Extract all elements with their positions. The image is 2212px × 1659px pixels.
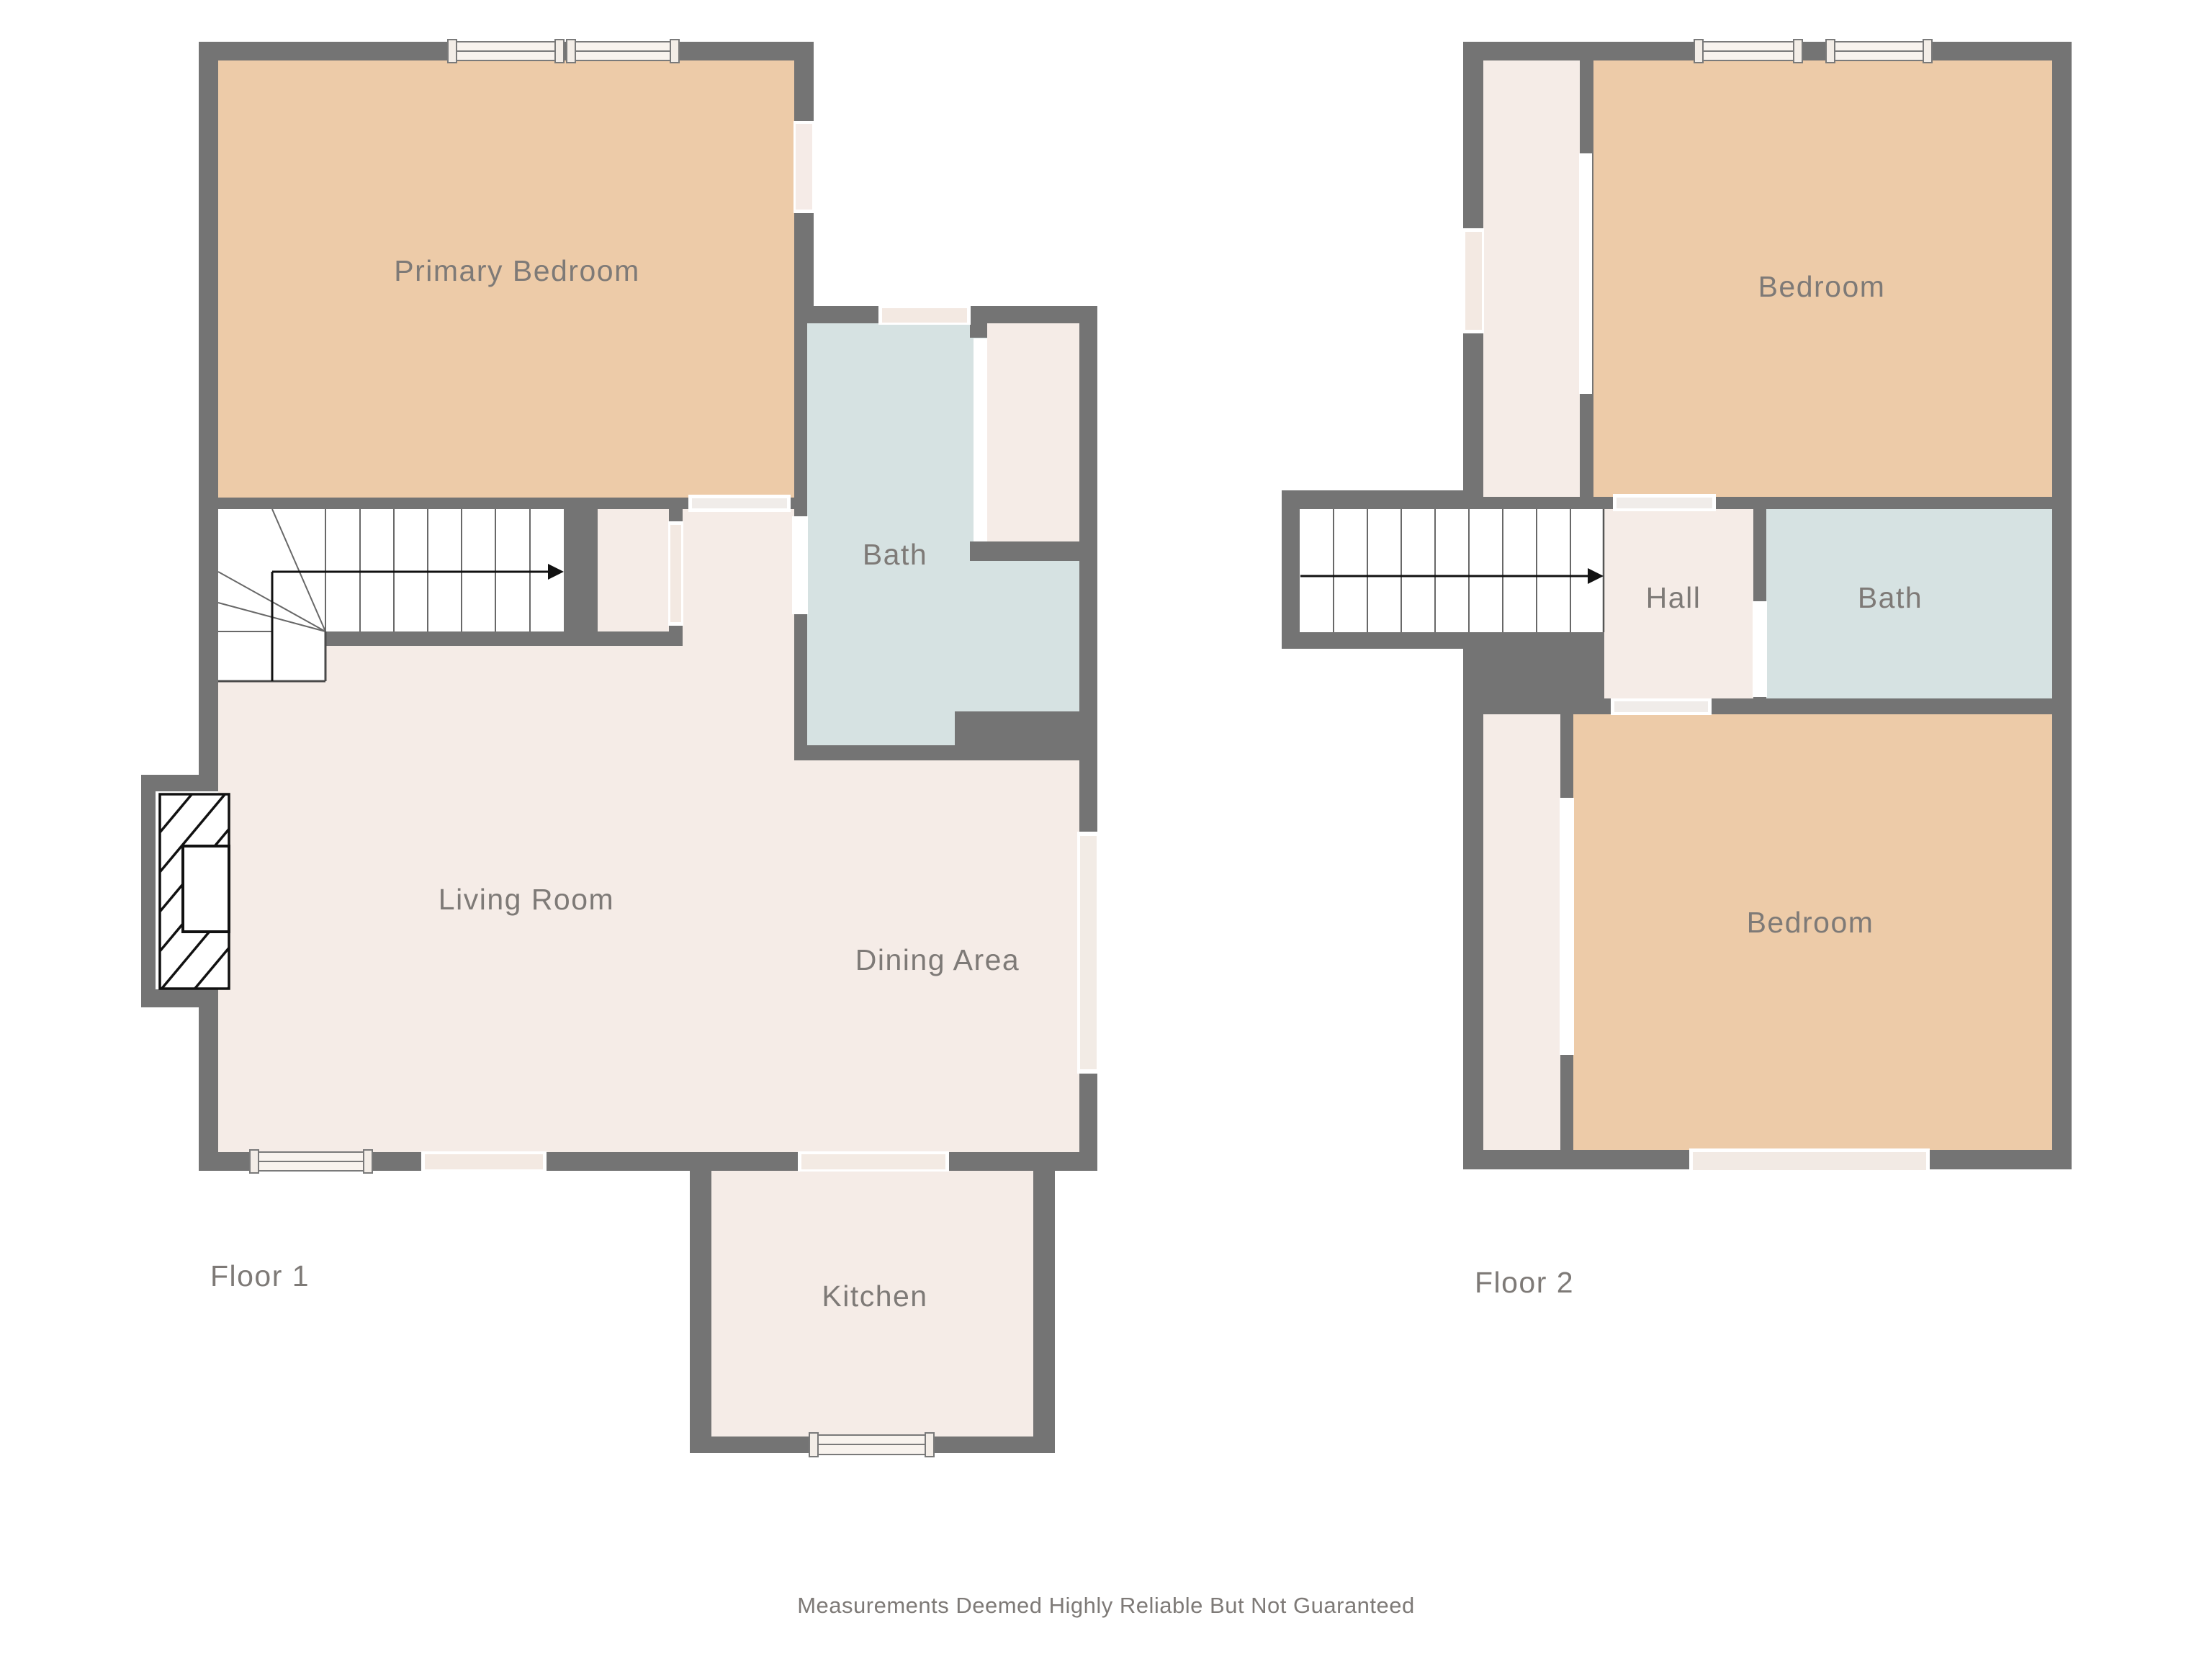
svg-text:Primary Bedroom: Primary Bedroom (394, 254, 639, 287)
svg-text:Bedroom: Bedroom (1758, 270, 1886, 303)
svg-text:Bath: Bath (1858, 581, 1923, 614)
svg-text:Floor 2: Floor 2 (1475, 1266, 1574, 1299)
svg-text:Dining Area: Dining Area (855, 943, 1020, 976)
svg-text:Floor 1: Floor 1 (210, 1259, 310, 1292)
svg-text:Bedroom: Bedroom (1747, 906, 1874, 939)
svg-text:Measurements Deemed Highly Rel: Measurements Deemed Highly Reliable But … (797, 1593, 1415, 1618)
svg-text:Hall: Hall (1646, 581, 1701, 614)
svg-text:Living Room: Living Room (439, 883, 614, 916)
svg-text:Bath: Bath (863, 538, 927, 571)
svg-text:Kitchen: Kitchen (822, 1280, 927, 1313)
